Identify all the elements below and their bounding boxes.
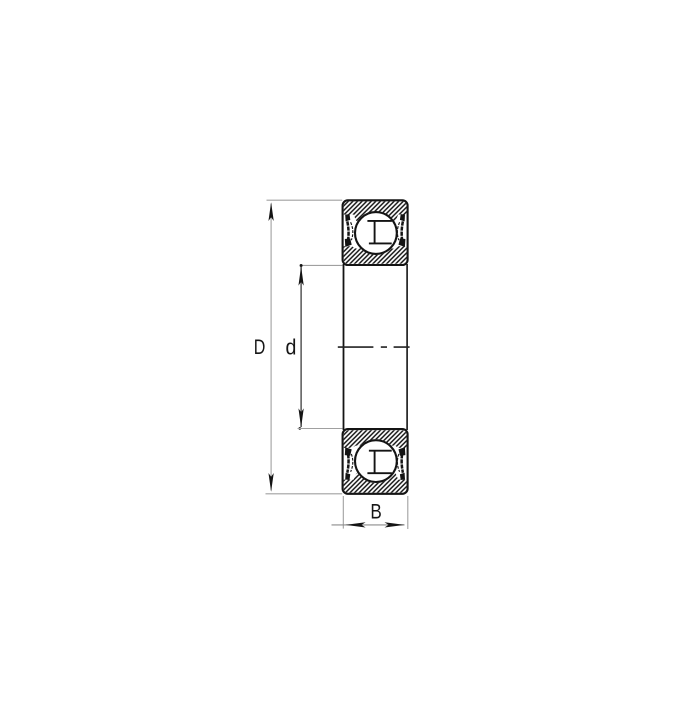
svg-text:B: B bbox=[370, 501, 381, 524]
svg-text:d: d bbox=[286, 334, 297, 359]
svg-text:D: D bbox=[254, 336, 266, 359]
